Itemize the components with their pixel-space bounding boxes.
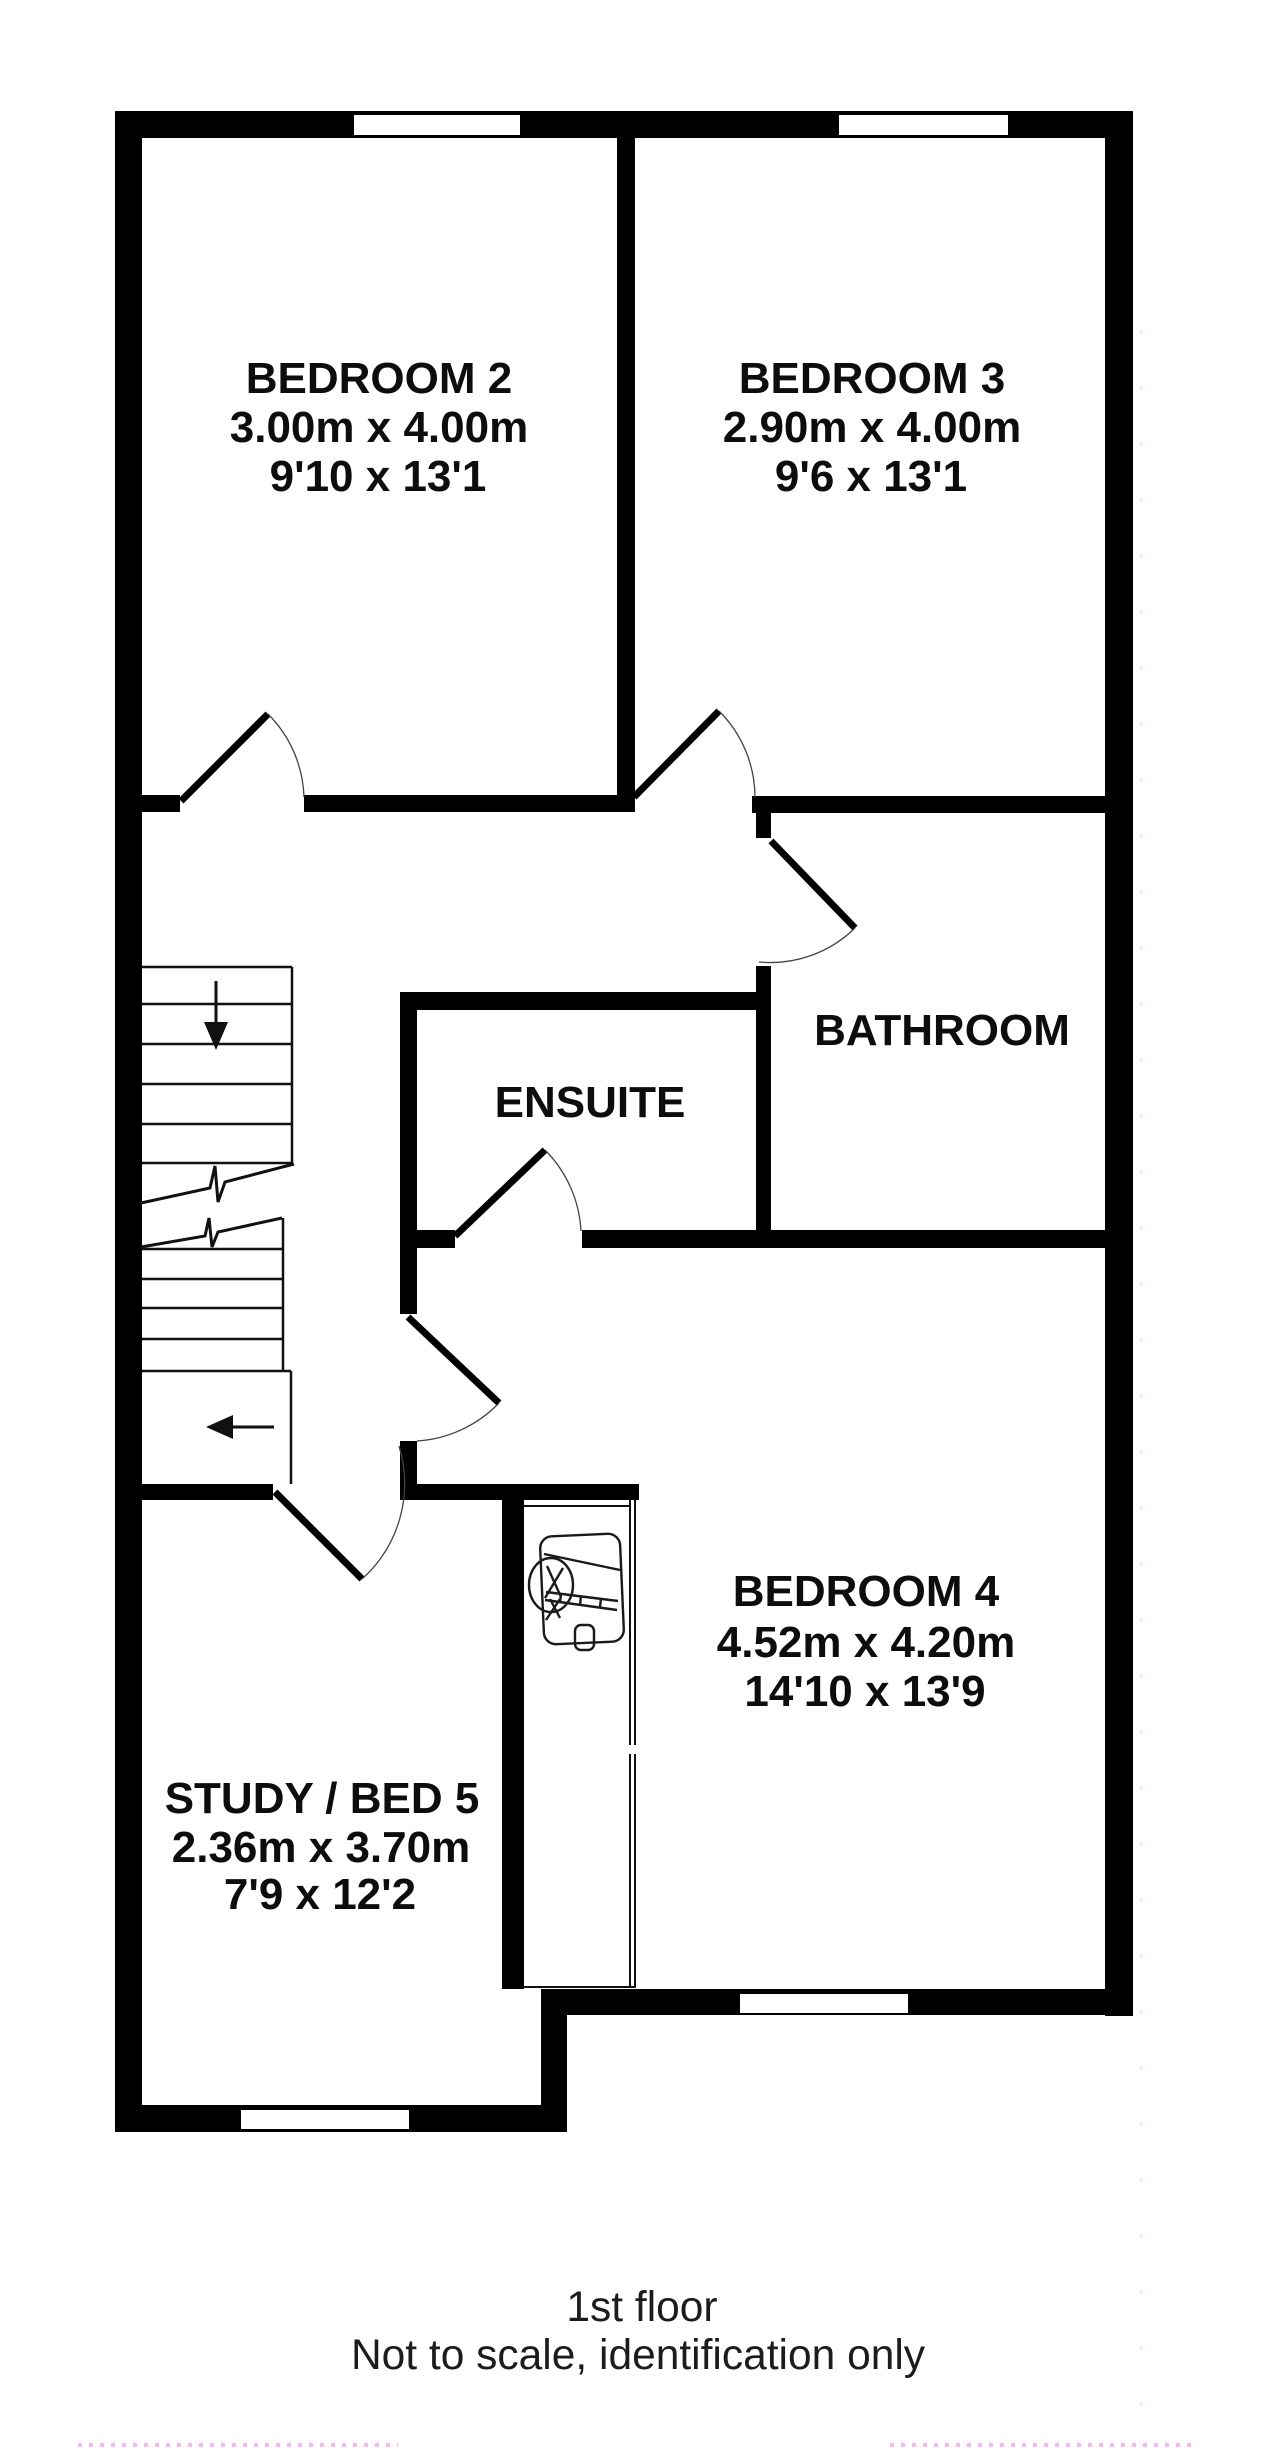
svg-text:3.00m x 4.00m: 3.00m x 4.00m [230, 403, 528, 452]
svg-text:BATHROOM: BATHROOM [814, 1006, 1070, 1055]
svg-text:14'10 x 13'9: 14'10 x 13'9 [744, 1667, 985, 1716]
svg-text:1st floor: 1st floor [566, 2284, 717, 2331]
svg-text:BEDROOM 3: BEDROOM 3 [739, 354, 1005, 403]
svg-text:7'9 x 12'2: 7'9 x 12'2 [224, 1870, 416, 1919]
svg-text:ENSUITE: ENSUITE [495, 1078, 686, 1127]
svg-text:4.52m x 4.20m: 4.52m x 4.20m [717, 1618, 1015, 1667]
svg-text:2.90m x 4.00m: 2.90m x 4.00m [723, 403, 1021, 452]
svg-text:9'10 x 13'1: 9'10 x 13'1 [270, 452, 487, 501]
svg-text:BEDROOM 4: BEDROOM 4 [733, 1567, 1000, 1616]
svg-text:2.36m x 3.70m: 2.36m x 3.70m [172, 1823, 470, 1872]
svg-text:Not to scale, identification o: Not to scale, identification only [351, 2332, 926, 2379]
svg-text:BEDROOM 2: BEDROOM 2 [246, 354, 512, 403]
svg-text:9'6 x 13'1: 9'6 x 13'1 [775, 452, 967, 501]
svg-text:STUDY / BED 5: STUDY / BED 5 [165, 1774, 480, 1823]
